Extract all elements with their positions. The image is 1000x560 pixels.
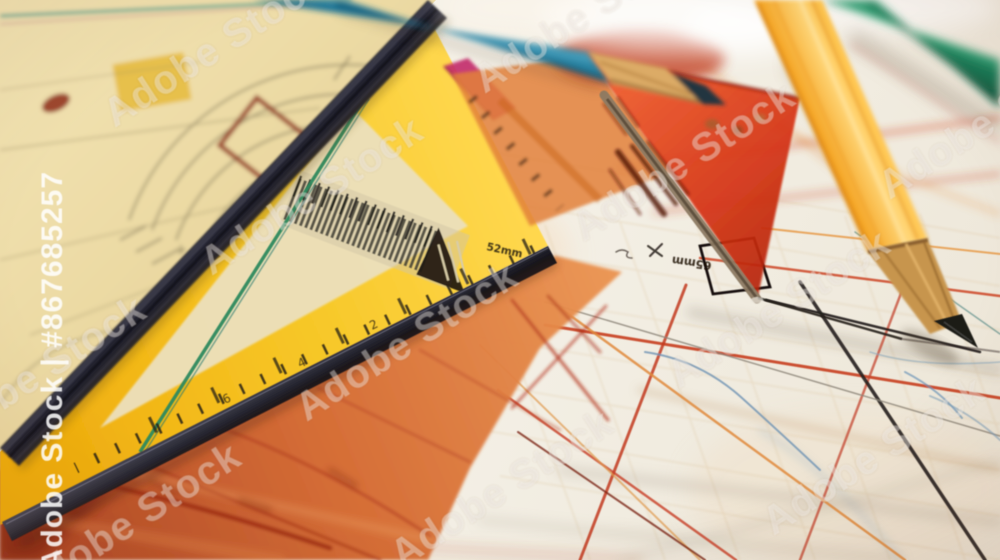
- photo-scene: 2 4 6 6 52mm: [0, 0, 1000, 560]
- photo-drafting-tools: 2 4 6 6 52mm: [0, 0, 1000, 560]
- vignette: [0, 0, 1000, 560]
